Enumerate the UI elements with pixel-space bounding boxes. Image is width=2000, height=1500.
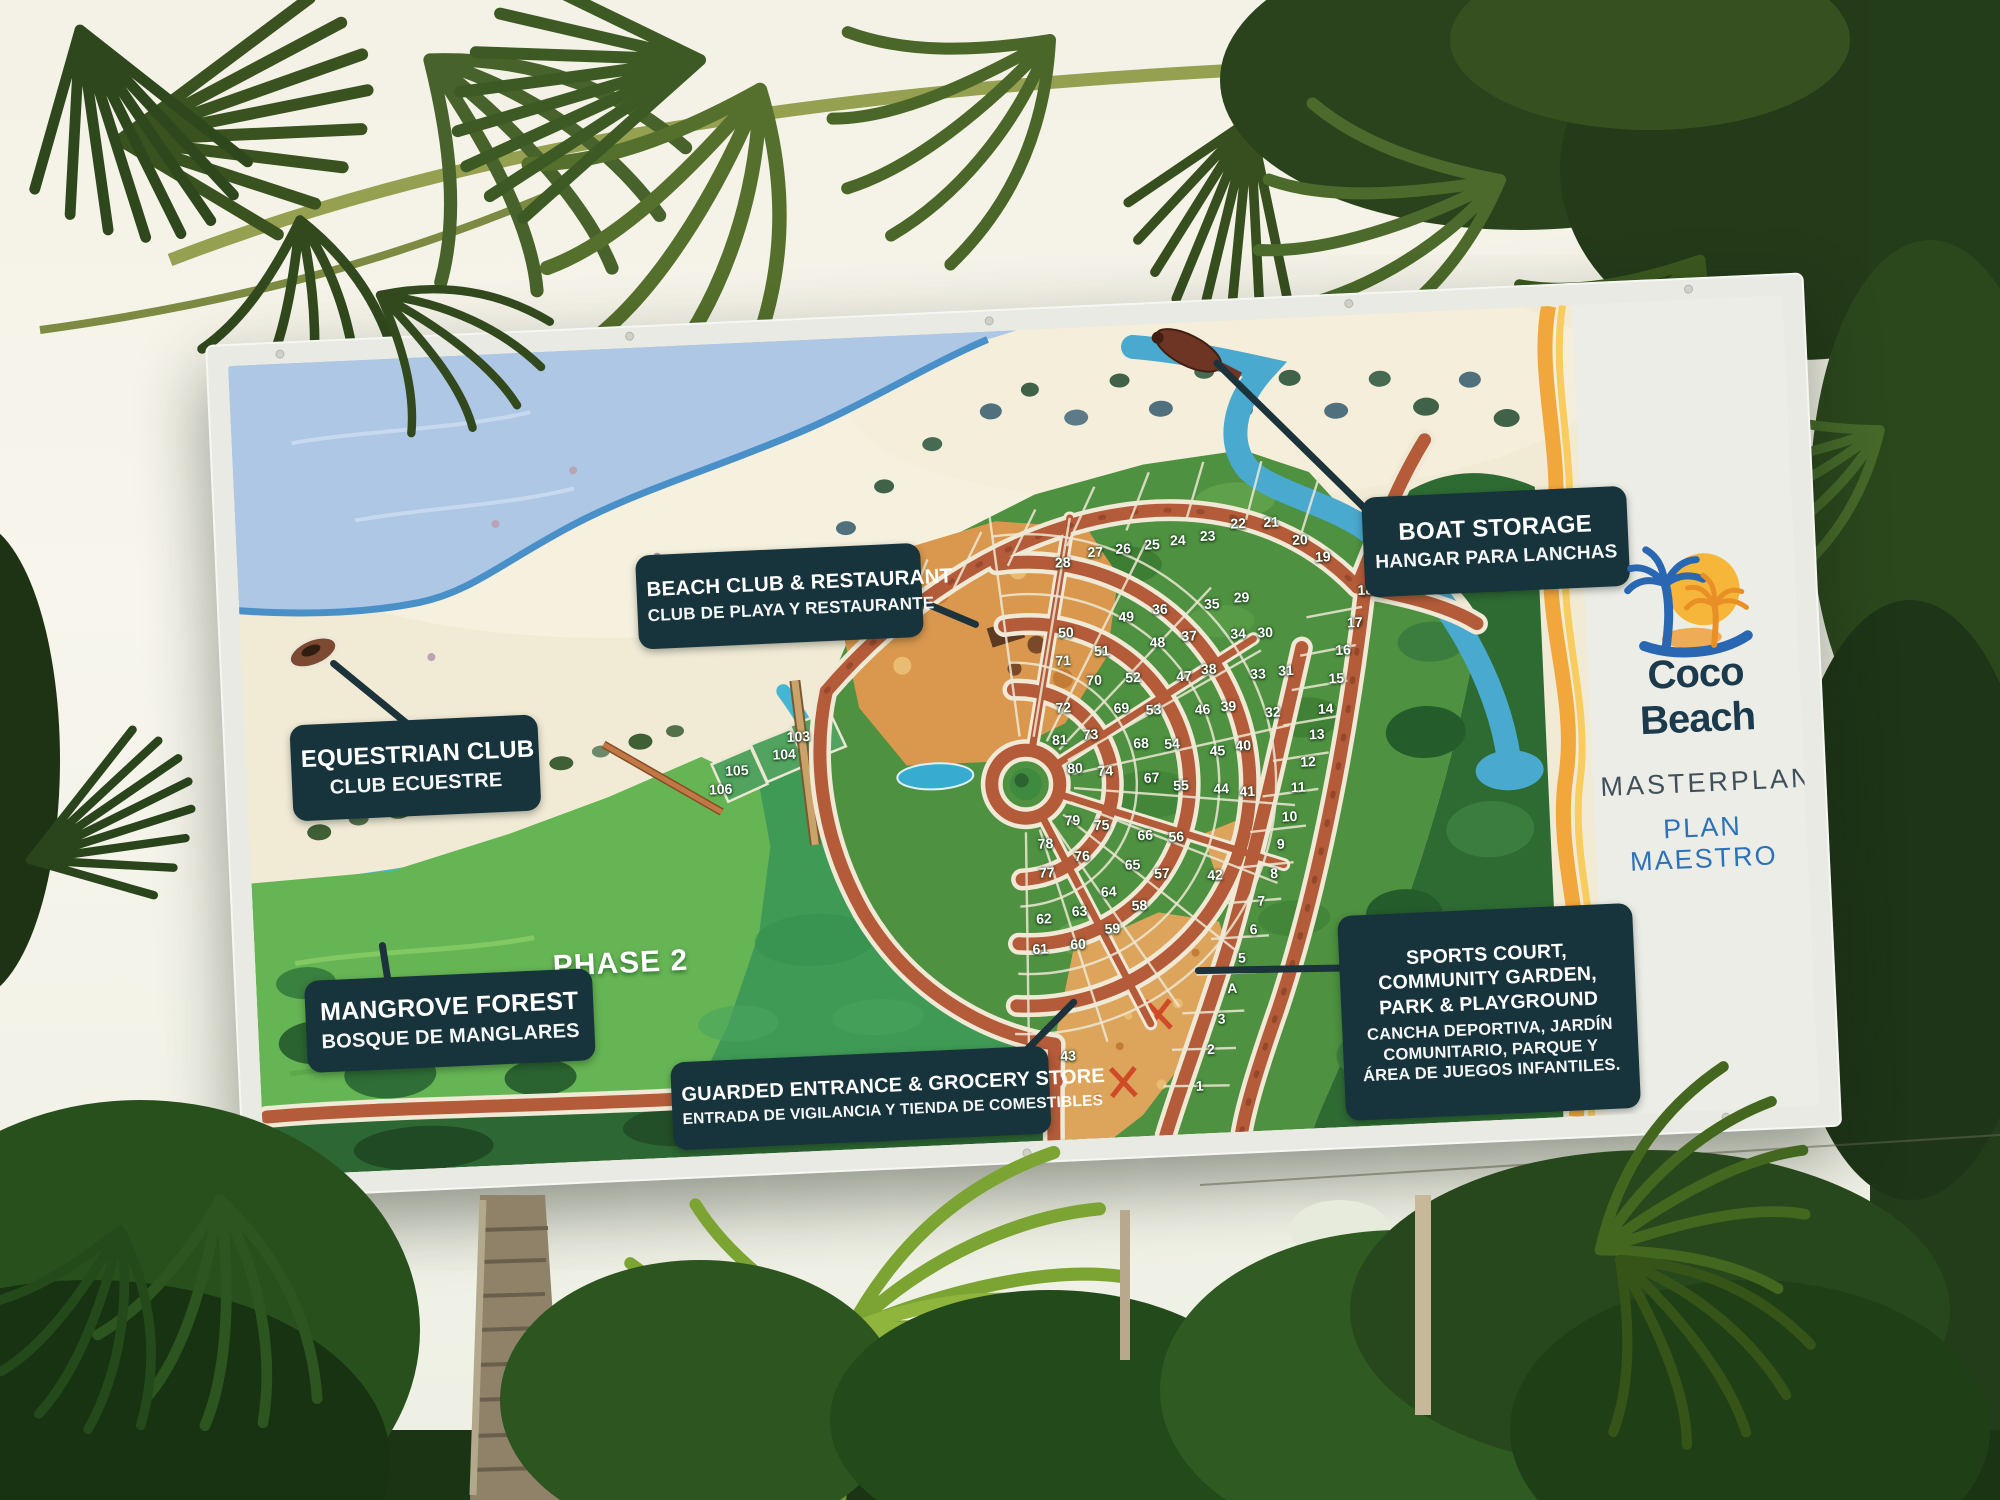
lot-number: 53 [1145, 701, 1161, 718]
lot-number: 17 [1347, 614, 1363, 631]
lot-number: 40 [1235, 737, 1251, 754]
lot-number: 34 [1230, 625, 1246, 642]
callout-guarded-entrance: GUARDED ENTRANCE & GROCERY STORE ENTRADA… [670, 1045, 1052, 1150]
thin-trunk [1415, 1195, 1431, 1415]
lot-number: 104 [772, 746, 796, 763]
lot-number: 105 [725, 762, 749, 779]
lot-number: 58 [1131, 897, 1147, 914]
screw [1344, 299, 1353, 308]
billboard-photo: { "billboard": { "logo": { "brand": "Coc… [0, 0, 2000, 1500]
lot-number: 57 [1154, 865, 1170, 882]
lot-number: 106 [709, 781, 733, 798]
palm-trunk [470, 1195, 565, 1500]
lot-number: 45 [1209, 742, 1225, 759]
lot-number: 65 [1124, 856, 1140, 873]
lot-number: 62 [1036, 910, 1052, 927]
lot-number: 61 [1032, 940, 1048, 957]
lot-number: 47 [1176, 668, 1192, 685]
lot-number: 20 [1292, 531, 1308, 548]
lot-number: 52 [1125, 669, 1141, 686]
lot-number: 77 [1039, 864, 1055, 881]
screw [985, 316, 994, 325]
lot-number: 10 [1281, 808, 1297, 825]
lot-number: 37 [1181, 627, 1197, 644]
lot-number: 78 [1037, 835, 1053, 852]
lot-number: 71 [1055, 652, 1071, 669]
lot-number: 7 [1257, 892, 1266, 908]
lot-number: 22 [1230, 515, 1246, 532]
lot-number: 33 [1250, 665, 1266, 682]
lot-number: 81 [1052, 731, 1068, 748]
lot-number: 23 [1200, 527, 1216, 544]
lot-number: 16 [1335, 641, 1351, 658]
callout-text-es: CLUB ECUESTRE [302, 767, 531, 800]
lot-number: 39 [1220, 698, 1236, 715]
lot-number: 73 [1082, 726, 1098, 743]
lot-number: 46 [1194, 701, 1210, 718]
lot-number: 59 [1104, 920, 1120, 937]
lot-number: 44 [1213, 780, 1229, 797]
lot-number: 60 [1070, 936, 1086, 953]
lot-number: 74 [1097, 762, 1113, 779]
lot-number: 2 [1207, 1041, 1216, 1057]
lot-number: 43 [1060, 1047, 1076, 1064]
lot-number: 1 [1195, 1077, 1204, 1093]
lot-number: 68 [1133, 735, 1149, 752]
lot-number: 54 [1164, 735, 1180, 752]
lot-number: 51 [1094, 642, 1110, 659]
lot-number: 69 [1113, 699, 1129, 716]
lot-number: 36 [1152, 601, 1168, 618]
billboard-sign: .case{stroke:#efe9d6;stroke-width:22;fil… [205, 272, 1842, 1199]
lot-number: 30 [1257, 624, 1273, 641]
lot-number: 72 [1055, 699, 1071, 716]
lot-number: 13 [1309, 726, 1325, 743]
lot-number: A [1227, 980, 1238, 996]
lot-number: 50 [1058, 624, 1074, 641]
lot-number: 24 [1170, 532, 1186, 549]
callout-beach-club: BEACH CLUB & RESTAURANT CLUB DE PLAYA Y … [635, 543, 924, 650]
lot-number: 42 [1207, 866, 1223, 883]
lot-number: 12 [1300, 753, 1316, 770]
brand-subtitle-en: MASTERPLAN [1600, 763, 1801, 803]
callout-text-en: SPORTS COURT, COMMUNITY GARDEN, PARK & P… [1353, 936, 1623, 1021]
lot-number: 27 [1087, 543, 1103, 560]
lot-number: 26 [1115, 540, 1131, 557]
callout-mangrove-forest: MANGROVE FOREST BOSQUE DE MANGLARES [304, 968, 596, 1073]
lot-number: 75 [1094, 816, 1110, 833]
callout-text-es: CANCHA DEPORTIVA, JARDÍN COMUNITARIO, PA… [1356, 1013, 1626, 1087]
lot-number: 70 [1086, 672, 1102, 689]
lot-number: 11 [1290, 779, 1306, 796]
screw [1721, 1113, 1730, 1122]
lot-number: 32 [1265, 704, 1281, 721]
screw [625, 332, 634, 341]
lot-number: 14 [1318, 700, 1334, 717]
lot-number: 64 [1101, 883, 1117, 900]
lot-number: 67 [1143, 769, 1159, 786]
lot-number: 41 [1239, 783, 1255, 800]
lot-number: 63 [1071, 903, 1087, 920]
lot-number: 35 [1204, 595, 1220, 612]
lot-number: 6 [1249, 921, 1258, 937]
palm-crown [564, 1143, 1175, 1500]
brand-panel: Coco Beach MASTERPLAN PLAN MAESTRO [1589, 533, 1804, 879]
brand-subtitle-es: PLAN MAESTRO [1602, 808, 1805, 879]
lot-number: 55 [1173, 777, 1189, 794]
lot-number: 79 [1064, 812, 1080, 829]
lot-number: 66 [1137, 827, 1153, 844]
lot-number: 80 [1067, 760, 1083, 777]
lot-number: 56 [1168, 828, 1184, 845]
lot-number: 76 [1074, 847, 1090, 864]
lot-number: 21 [1263, 513, 1279, 530]
lot-number: 15 [1328, 670, 1344, 687]
callout-sports-court: SPORTS COURT, COMMUNITY GARDEN, PARK & P… [1337, 903, 1641, 1121]
screw [1684, 284, 1693, 293]
lot-number: 49 [1118, 608, 1134, 625]
brand-name: Coco Beach [1595, 647, 1799, 746]
lot-number: 103 [786, 728, 810, 745]
lot-number: 38 [1201, 660, 1217, 677]
masterplan-map: .case{stroke:#efe9d6;stroke-width:22;fil… [228, 295, 1819, 1176]
lot-number: 3 [1217, 1010, 1226, 1026]
screw [275, 349, 284, 358]
lot-number: 19 [1315, 548, 1331, 565]
screw [313, 1179, 322, 1188]
screw [1022, 1148, 1031, 1157]
lot-number: 29 [1233, 589, 1249, 606]
lot-number: 8 [1270, 865, 1279, 881]
lot-number: 5 [1238, 949, 1247, 965]
lot-number: 28 [1055, 554, 1071, 571]
lot-number: 9 [1276, 836, 1285, 852]
lot-number: 31 [1278, 662, 1294, 679]
lot-number: 25 [1144, 536, 1160, 553]
coco-beach-logo [1609, 534, 1774, 661]
callout-equestrian-club: EQUESTRIAN CLUB CLUB ECUESTRE [289, 714, 541, 821]
lot-number: 48 [1149, 634, 1165, 651]
